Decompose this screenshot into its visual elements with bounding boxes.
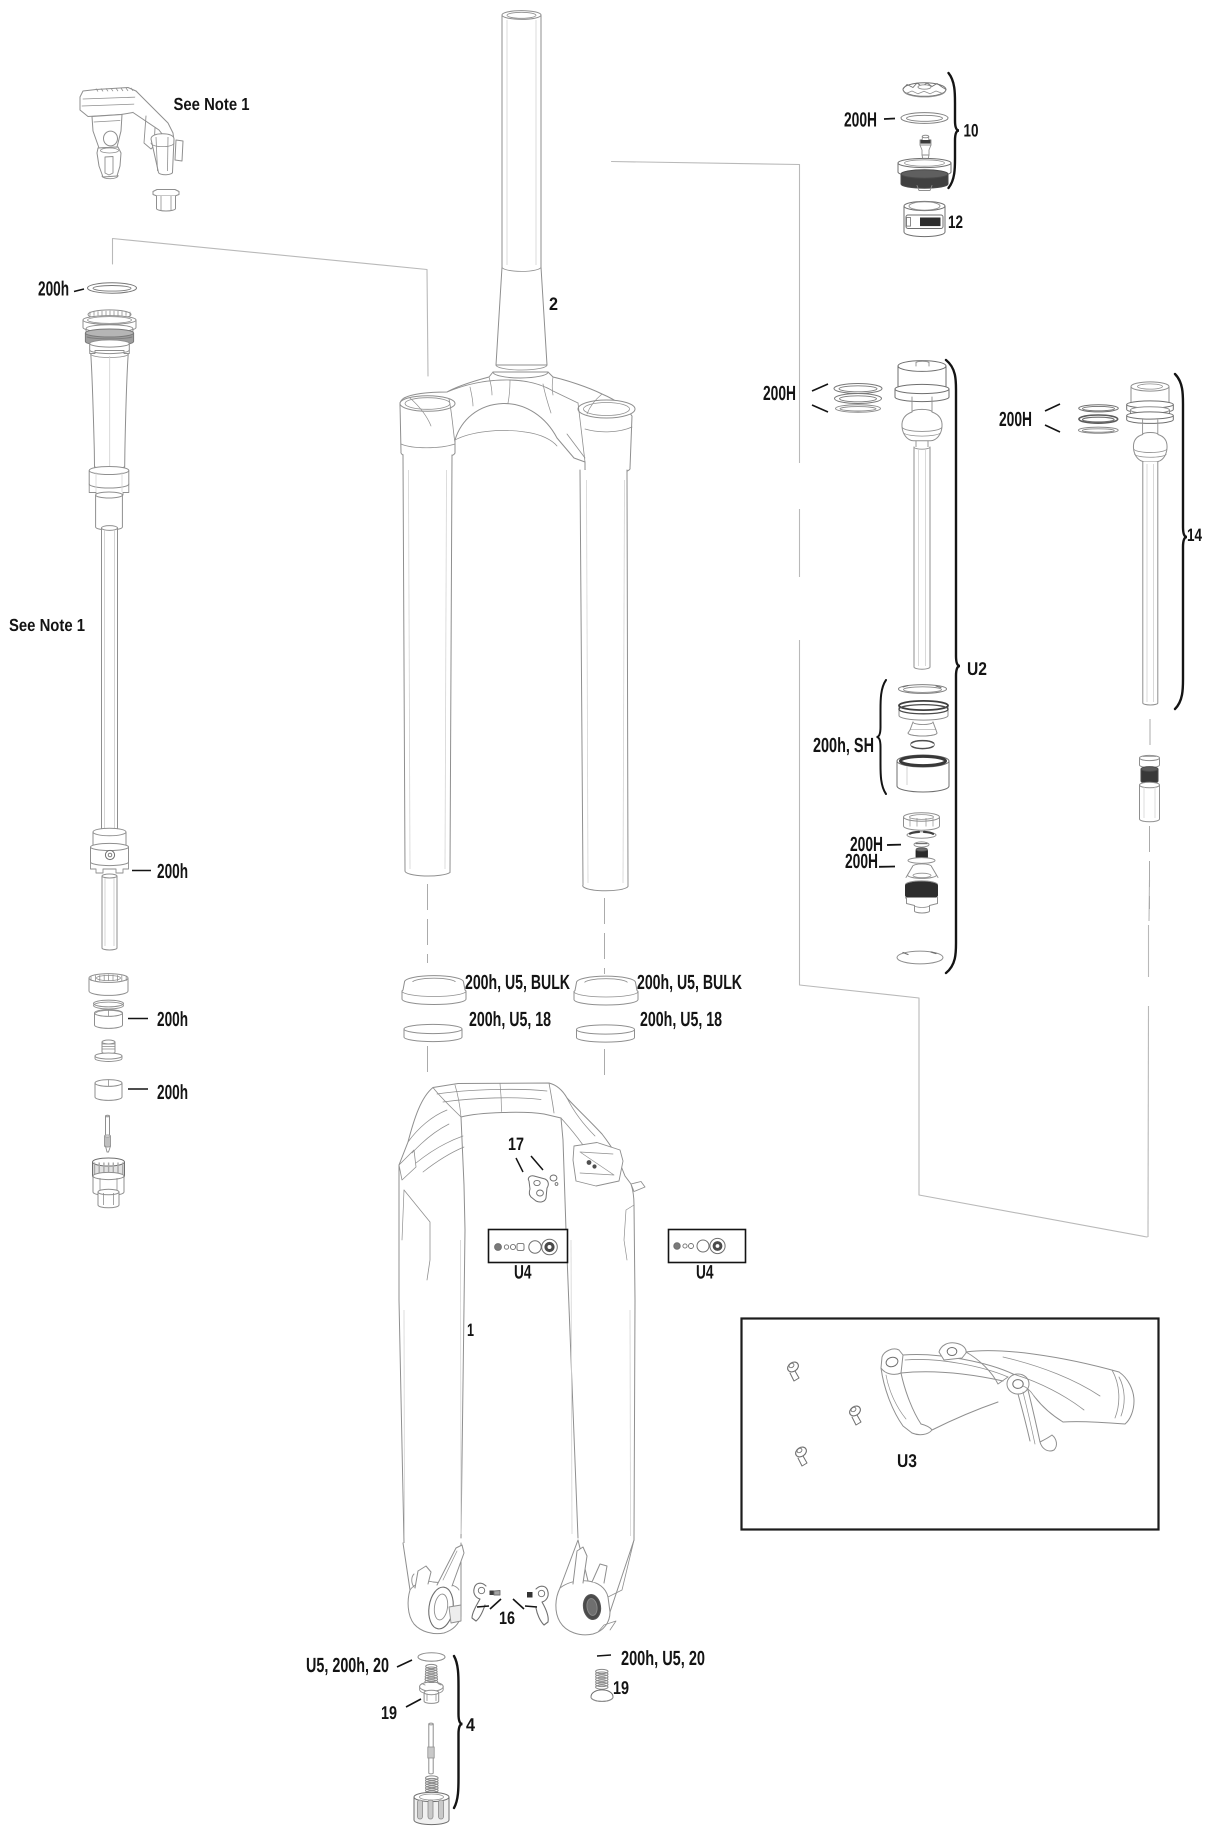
svg-text:200h, U5, 20: 200h, U5, 20 xyxy=(621,1647,705,1670)
svg-text:19: 19 xyxy=(381,1702,397,1723)
svg-text:U4: U4 xyxy=(696,1262,714,1284)
svg-text:10: 10 xyxy=(964,121,979,141)
svg-text:U5, 200h, 20: U5, 200h, 20 xyxy=(306,1654,389,1677)
svg-text:200h, U5, 18: 200h, U5, 18 xyxy=(640,1008,722,1031)
svg-text:1: 1 xyxy=(467,1320,474,1340)
svg-text:2: 2 xyxy=(549,294,558,314)
svg-text:200h, U5, BULK: 200h, U5, BULK xyxy=(465,971,570,994)
svg-text:200H: 200H xyxy=(999,408,1032,431)
svg-text:200h: 200h xyxy=(38,278,69,301)
svg-text:200h, U5, 18: 200h, U5, 18 xyxy=(469,1008,551,1031)
svg-text:17: 17 xyxy=(508,1134,524,1154)
svg-text:200h: 200h xyxy=(157,860,188,883)
svg-text:200h, U5, BULK: 200h, U5, BULK xyxy=(637,971,742,994)
svg-text:200h, SH: 200h, SH xyxy=(813,734,874,757)
svg-text:U4: U4 xyxy=(514,1262,532,1284)
svg-text:16: 16 xyxy=(499,1608,515,1628)
svg-text:200h: 200h xyxy=(157,1008,188,1031)
svg-text:19: 19 xyxy=(613,1677,629,1698)
svg-text:U3: U3 xyxy=(897,1450,917,1471)
svg-text:U2: U2 xyxy=(967,658,987,679)
svg-text:200h: 200h xyxy=(157,1081,188,1104)
svg-text:12: 12 xyxy=(948,212,963,232)
svg-text:4: 4 xyxy=(466,1714,476,1735)
svg-text:200H: 200H xyxy=(763,382,796,405)
svg-text:14: 14 xyxy=(1187,525,1202,545)
svg-text:200H: 200H xyxy=(844,109,877,132)
svg-text:See Note 1: See Note 1 xyxy=(174,94,250,114)
svg-text:See Note 1: See Note 1 xyxy=(9,615,85,635)
svg-text:200H: 200H xyxy=(845,850,878,873)
